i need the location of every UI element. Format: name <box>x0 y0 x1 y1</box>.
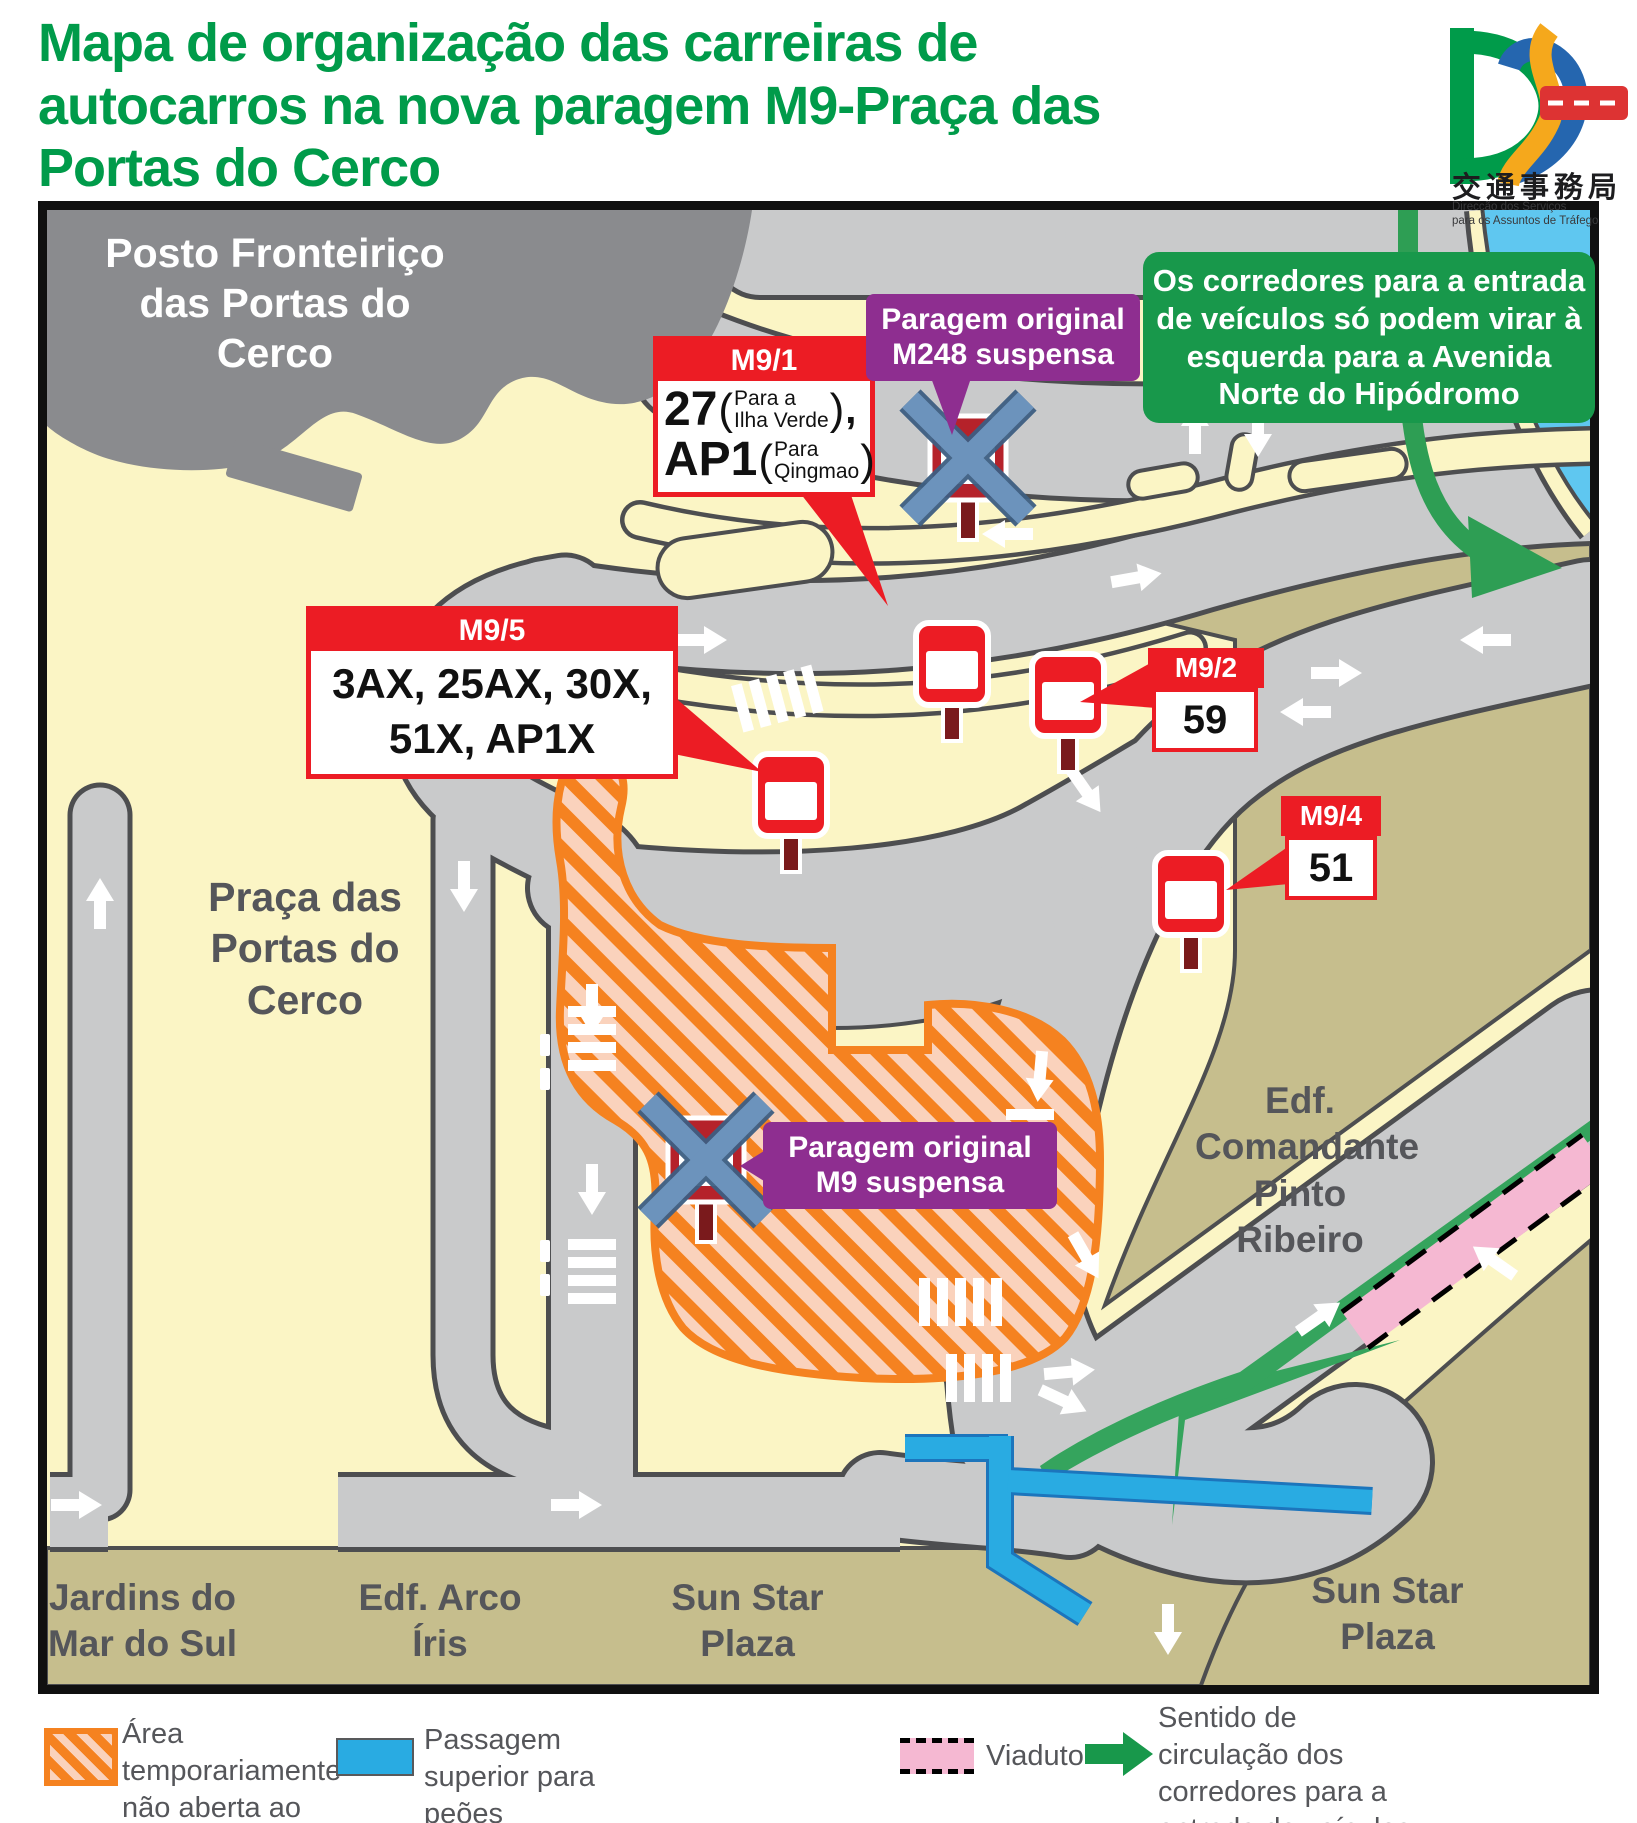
callout-stop-m91: M9/1 27 ( Para a Ilha Verde ) , AP1 ( Pa… <box>653 336 875 497</box>
paren: ) <box>829 385 846 435</box>
note-m248-suspended: Paragem original M248 suspensa <box>866 294 1140 381</box>
page-title: Mapa de organização das carreiras de aut… <box>38 12 1148 200</box>
label-sun-star-plaza-2: Sun Star Plaza <box>1305 1568 1470 1661</box>
paren: ( <box>757 436 774 486</box>
label-edf-arco-iris: Edf. Arco Íris <box>355 1575 525 1668</box>
paren: ( <box>717 385 734 435</box>
route-list-line2: 51X, AP1X <box>313 712 671 767</box>
route-number: 27 <box>664 385 717 435</box>
route-number: AP1 <box>664 435 757 485</box>
paren: ) <box>859 436 876 486</box>
legend-overpass-label: Passagem superior para peões <box>424 1722 669 1823</box>
logo-org-name-pt-line1: Direcção dos Serviços <box>1452 201 1634 214</box>
legend-corridor-direction-label: Sentido de circulação dos corredores par… <box>1158 1700 1428 1823</box>
label-building-comandante: Edf. Comandante Pinto Ribeiro <box>1195 1078 1405 1263</box>
infographic-page: Mapa de organização das carreiras de aut… <box>0 0 1637 1823</box>
logo-org-name-pt-line2: para os Assuntos de Tráfego <box>1452 215 1634 228</box>
stop-id-badge: M9/5 <box>311 611 673 651</box>
label-frontier-post: Posto Fronteiriço das Portas do Cerco <box>80 228 470 378</box>
note-m9-suspended: Paragem original M9 suspensa <box>763 1122 1057 1209</box>
callout-stop-m95: M9/5 3AX, 25AX, 30X, 51X, AP1X <box>306 606 678 779</box>
callout-stop-m94-route: 51 <box>1285 836 1377 900</box>
route-destination: Para a Ilha Verde <box>734 388 829 432</box>
callout-stop-m92-badge: M9/2 <box>1148 648 1264 688</box>
stop-id-badge: M9/1 <box>658 341 870 381</box>
callout-stop-m92-route: 59 <box>1152 688 1258 752</box>
dsat-logo-icon <box>1462 30 1628 184</box>
route-destination: Para Qingmao <box>774 439 859 483</box>
legend-viaduct-swatch <box>900 1738 974 1774</box>
legend-closed-area-swatch <box>44 1728 118 1786</box>
label-sun-star-plaza-1: Sun Star Plaza <box>665 1575 830 1668</box>
legend-viaduct-label: Viaduto <box>986 1738 1136 1775</box>
callout-stop-m94-badge: M9/4 <box>1281 796 1381 836</box>
note-entry-corridor: Os corredores para a entrada de veículos… <box>1143 252 1595 423</box>
separator: , <box>845 388 856 433</box>
logo-org-name-zh: 交通事務局 <box>1452 164 1632 206</box>
label-jardins-mar-do-sul: Jardins do Mar do Sul <box>40 1575 245 1668</box>
legend-overpass-swatch <box>336 1738 414 1776</box>
route-list-line1: 3AX, 25AX, 30X, <box>313 657 671 712</box>
label-plaza: Praça das Portas do Cerco <box>185 872 425 1026</box>
